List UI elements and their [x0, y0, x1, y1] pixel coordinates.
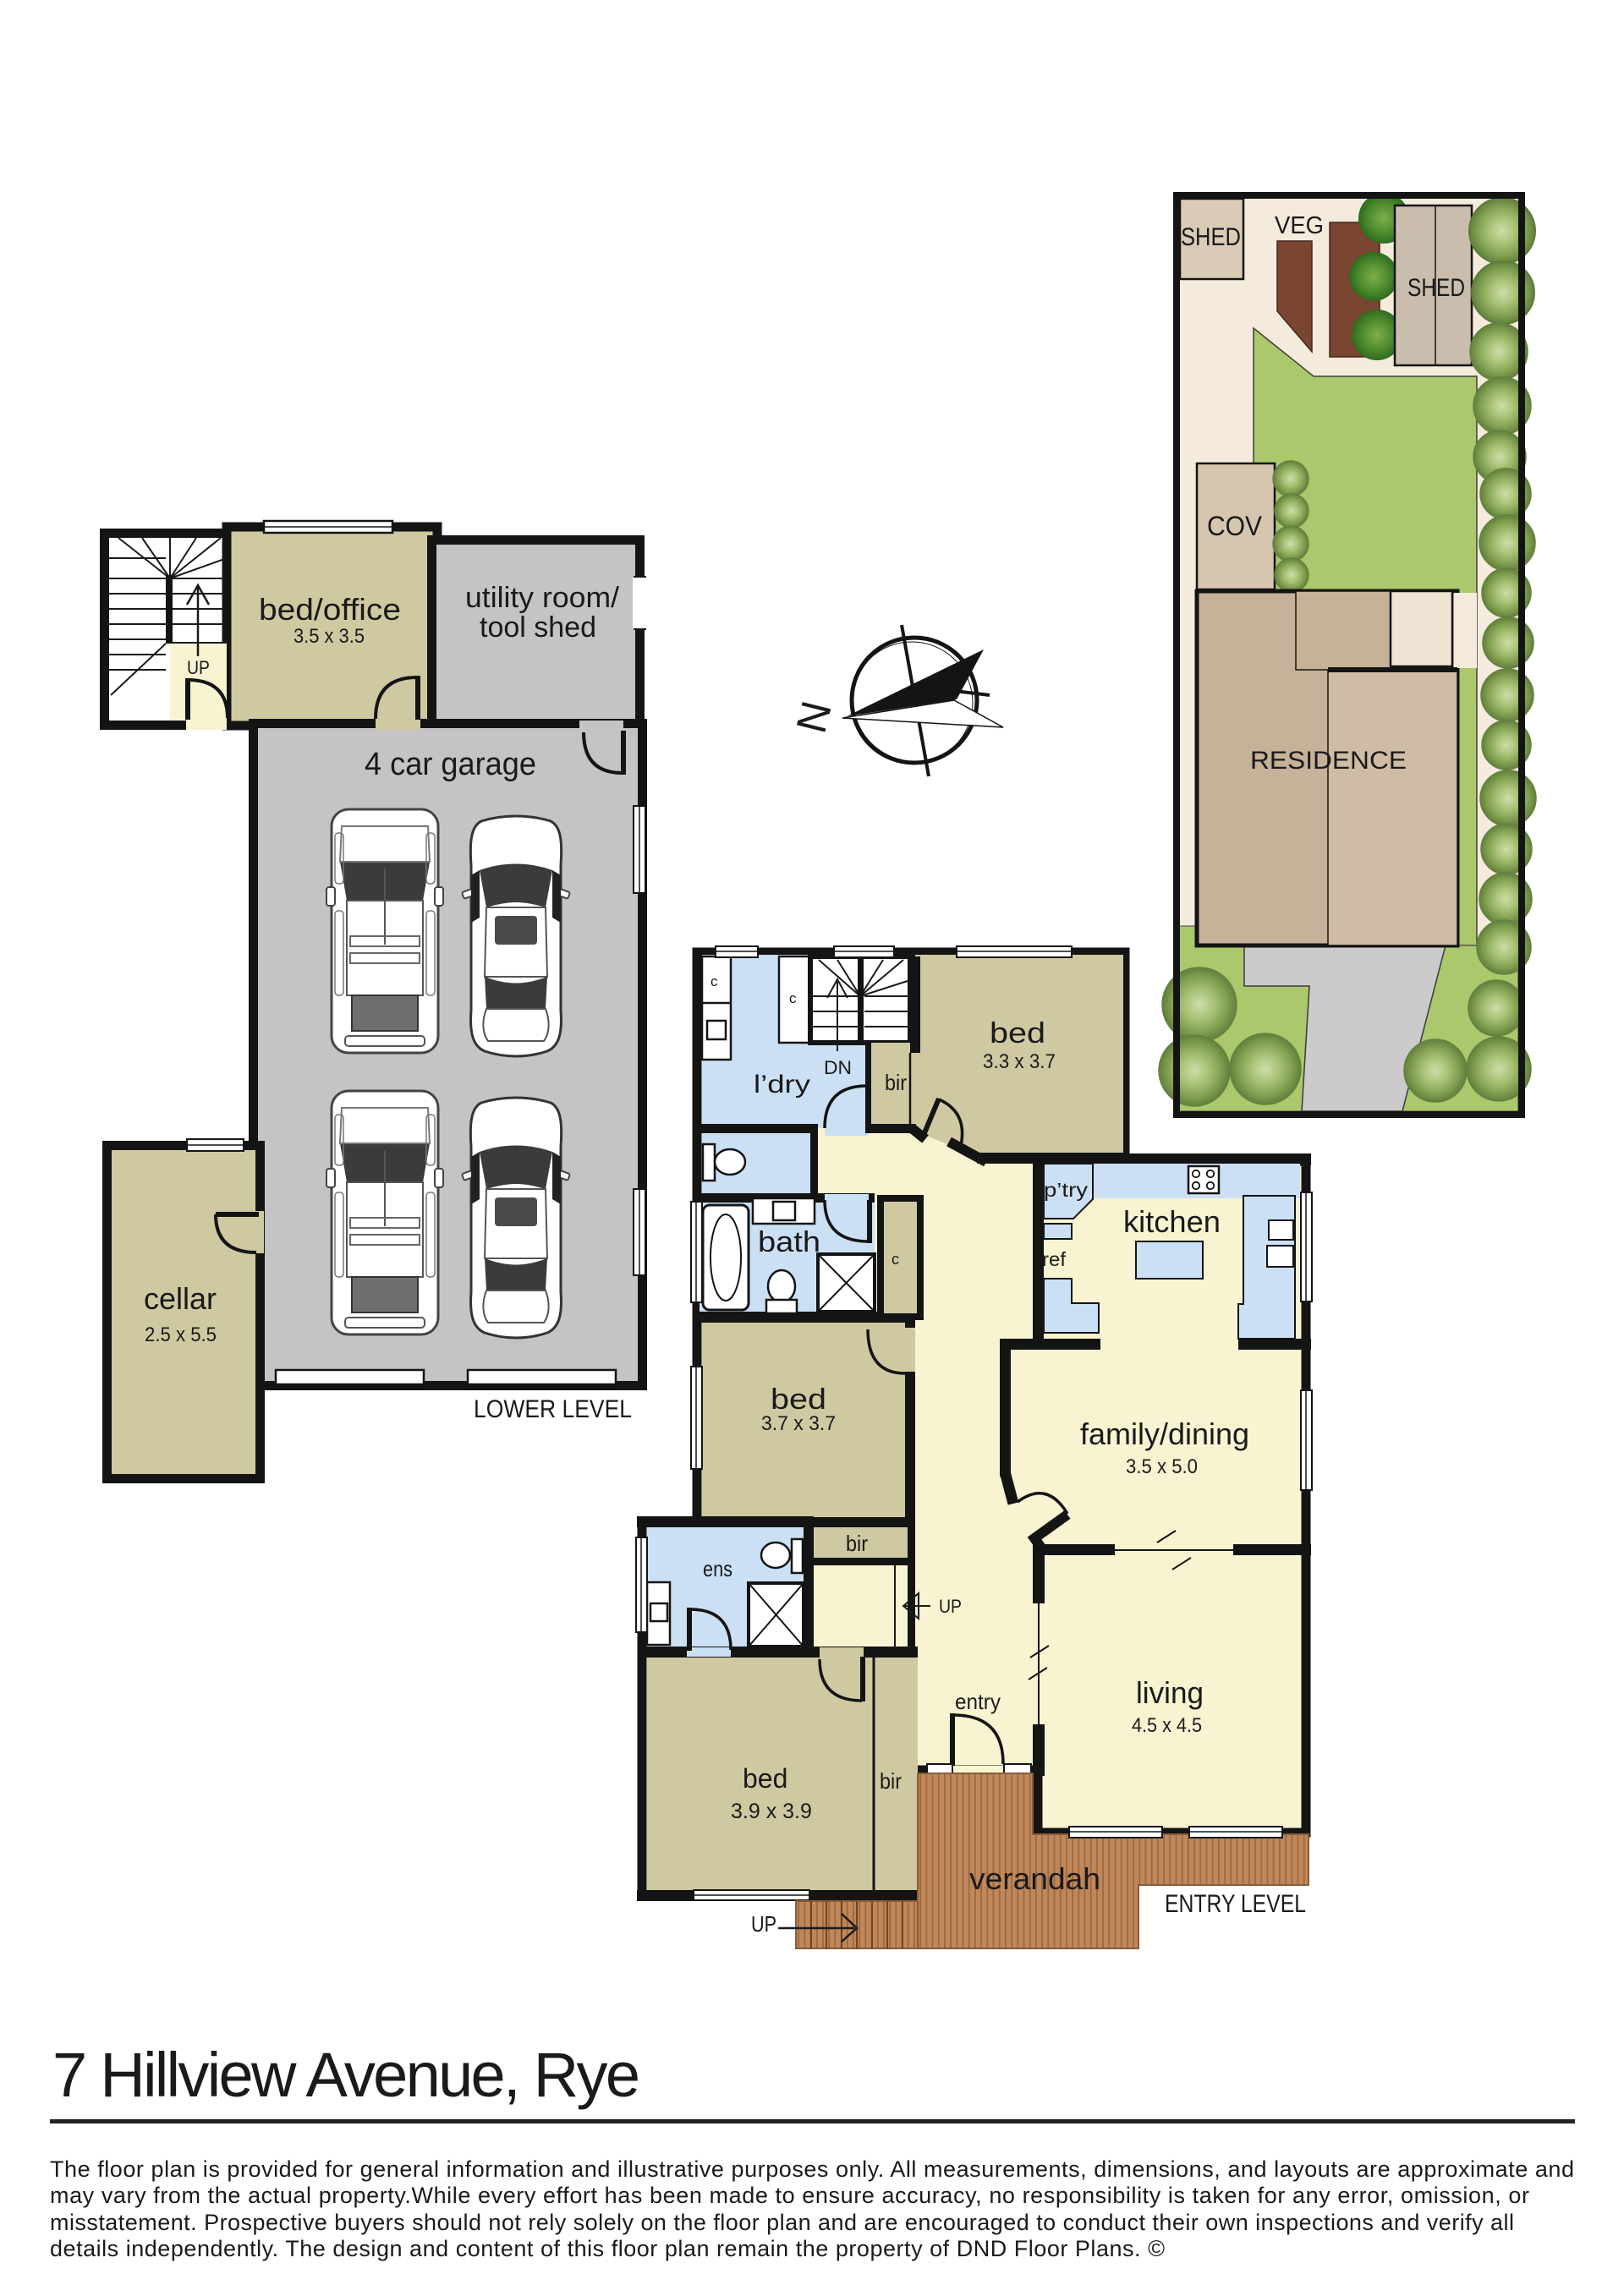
svg-text:2.5 x 5.5: 2.5 x 5.5 [145, 1323, 217, 1346]
svg-text:c: c [789, 990, 797, 1006]
svg-text:l’dry: l’dry [754, 1071, 810, 1099]
svg-text:bed: bed [990, 1017, 1045, 1049]
svg-text:7 Hillview Avenue, Rye: 7 Hillview Avenue, Rye [52, 2040, 640, 2110]
svg-text:may vary from the actual prope: may vary from the actual property.While … [50, 2183, 1529, 2208]
svg-text:kitchen: kitchen [1123, 1204, 1221, 1239]
svg-text:bed/office: bed/office [259, 592, 401, 627]
svg-text:c: c [892, 1251, 899, 1268]
svg-text:family/dining: family/dining [1080, 1417, 1249, 1451]
svg-text:bath: bath [758, 1226, 820, 1258]
svg-text:verandah: verandah [969, 1861, 1100, 1896]
svg-text:LOWER LEVEL: LOWER LEVEL [474, 1395, 632, 1423]
svg-text:UP: UP [939, 1596, 962, 1617]
svg-text:SHED: SHED [1181, 223, 1241, 251]
svg-text:p’try: p’try [1044, 1179, 1089, 1201]
svg-text:cellar: cellar [144, 1281, 217, 1316]
svg-text:The floor plan is provided for: The floor plan is provided for general i… [50, 2156, 1574, 2182]
svg-text:VEG: VEG [1275, 212, 1324, 239]
svg-text:COV: COV [1207, 511, 1263, 541]
svg-text:RESIDENCE: RESIDENCE [1250, 747, 1407, 775]
svg-text:UP: UP [751, 1911, 776, 1937]
svg-text:bir: bir [885, 1070, 907, 1095]
svg-text:4.5 x 4.5: 4.5 x 4.5 [1132, 1714, 1202, 1737]
svg-text:4 car garage: 4 car garage [365, 747, 536, 782]
svg-text:SHED: SHED [1407, 274, 1465, 302]
svg-text:ref: ref [1042, 1248, 1067, 1270]
svg-text:3.3 x 3.7: 3.3 x 3.7 [983, 1050, 1056, 1073]
svg-text:ENTRY LEVEL: ENTRY LEVEL [1165, 1890, 1306, 1918]
svg-text:entry: entry [955, 1689, 1001, 1714]
svg-text:3.9 x 3.9: 3.9 x 3.9 [731, 1800, 812, 1823]
svg-text:tool shed: tool shed [480, 611, 596, 644]
svg-text:c: c [710, 973, 718, 989]
svg-text:bir: bir [880, 1768, 902, 1794]
svg-text:bed: bed [771, 1384, 826, 1416]
svg-text:bir: bir [846, 1531, 868, 1556]
svg-text:3.5 x 3.5: 3.5 x 3.5 [294, 625, 365, 648]
svg-text:UP: UP [187, 657, 210, 678]
svg-text:3.7 x 3.7: 3.7 x 3.7 [761, 1412, 836, 1435]
svg-text:utility room/: utility room/ [465, 582, 620, 614]
svg-text:living: living [1136, 1675, 1204, 1710]
svg-text:N: N [787, 697, 841, 738]
svg-text:bed: bed [743, 1763, 787, 1794]
svg-text:misstatement. Prospective buye: misstatement. Prospective buyers should … [50, 2210, 1514, 2235]
svg-text:DN: DN [824, 1057, 852, 1078]
svg-text:details independently. The des: details independently. The design and co… [50, 2236, 1165, 2261]
svg-text:ens: ens [703, 1556, 732, 1581]
svg-text:3.5 x 5.0: 3.5 x 5.0 [1126, 1455, 1198, 1478]
